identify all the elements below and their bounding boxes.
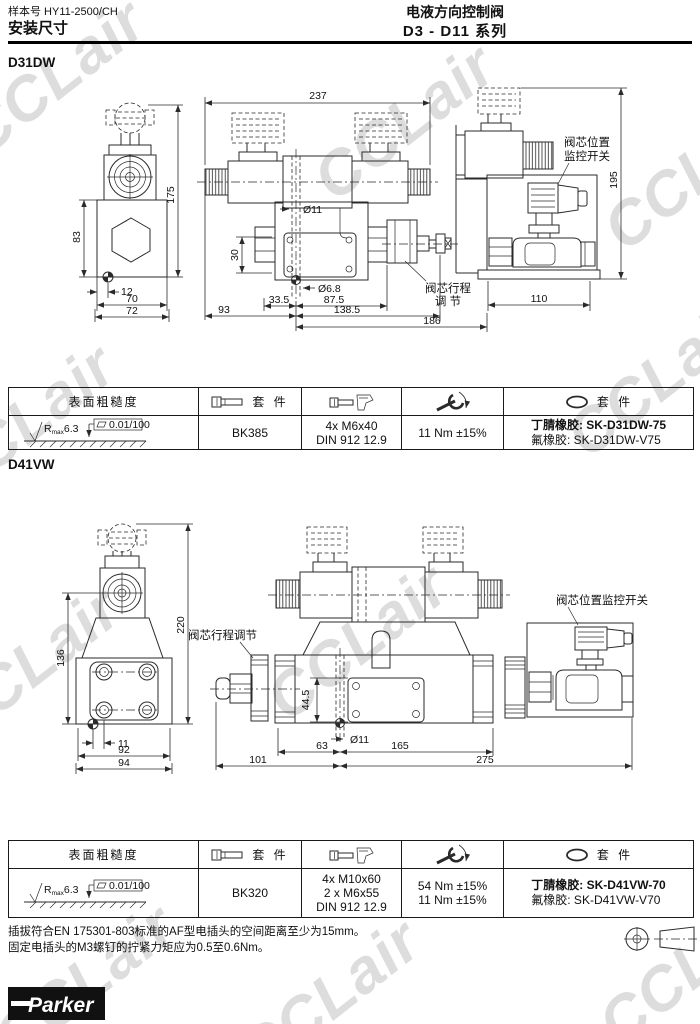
- bolt-spec-value: 4x M10x602 x M6x55DIN 912 12.9: [301, 868, 401, 917]
- footnote-line1: 插拔符合EN 175301-803标准的AF型电插头的空间距离至少为15mm。: [8, 924, 365, 940]
- wrench-icon: [431, 391, 475, 413]
- seal-kit-header: 套 件: [503, 841, 693, 868]
- roughness-symbol: Rmax6.3 0.01/100: [16, 416, 192, 449]
- seal-fkm: 氟橡胶: SK-D41VW-V70: [531, 893, 660, 908]
- seal-nbr-label: 丁腈橡胶:: [531, 418, 583, 432]
- d31dw-front-view: 237: [197, 90, 487, 332]
- bolt-line: DIN 912 12.9: [316, 433, 387, 447]
- table-d31dw: 表面粗糙度 套 件 套 件 Rmax6.3: [8, 387, 694, 450]
- dim-63: 63: [316, 740, 328, 752]
- torque-header: [401, 388, 503, 415]
- bolt-kit-value: BK385: [198, 415, 301, 449]
- page-title: 安装尺寸: [8, 17, 68, 38]
- dim-dia-11: Ø11: [303, 204, 322, 216]
- bolt-kit-header: 套 件: [198, 388, 301, 415]
- dim-94: 94: [118, 757, 130, 769]
- seal-nbr-value: SK-D31DW-75: [586, 418, 666, 432]
- seal-nbr: 丁腈橡胶: SK-D31DW-75: [531, 418, 666, 433]
- dim-33-5: 33.5: [269, 294, 290, 306]
- kit-label: 套 件: [252, 393, 288, 410]
- d41vw-front-view: 阀芯行程调节 44.5 Ø11 63 165 10: [188, 527, 632, 770]
- torque-line: 54 Nm ±15%: [418, 879, 487, 893]
- dim-138-5: 138.5: [334, 304, 360, 316]
- projection-symbol: [618, 924, 698, 956]
- dim-186: 186: [423, 315, 441, 327]
- dim-93: 93: [218, 304, 230, 316]
- screw-caliper-icon: [328, 845, 376, 865]
- bolt-line: 2 x M6x55: [324, 886, 379, 900]
- bolt-kit-header: 套 件: [198, 841, 301, 868]
- table-d41vw: 表面粗糙度 套 件 套 件 Rmax6.3: [8, 840, 694, 918]
- dim-width-72: 72: [126, 305, 138, 317]
- section-heading-d31dw: D31DW: [8, 55, 55, 70]
- kit-label: 套 件: [597, 846, 633, 863]
- seal-kit-values: 丁腈橡胶: SK-D41VW-70 氟橡胶: SK-D41VW-V70: [503, 868, 693, 917]
- roughness-text: Rmax6.3: [44, 423, 79, 436]
- bolt-line: 4x M10x60: [322, 872, 381, 886]
- dim-width-70: 70: [126, 293, 138, 305]
- footnote-line2: 固定电插头的M3螺钉的拧紧力矩应为0.5至0.6Nm。: [8, 940, 365, 956]
- series-title: D3 - D11 系列: [330, 20, 580, 41]
- brand-name: Parker: [28, 994, 95, 1017]
- dim-overall-width: 237: [309, 90, 327, 102]
- oring-icon: [564, 848, 590, 862]
- surface-roughness-symbol: Rmax6.3 0.01/100: [9, 415, 198, 449]
- dim-92: 92: [118, 744, 130, 756]
- dim-165: 165: [391, 740, 409, 752]
- flatness-value: 0.01/100: [109, 419, 150, 431]
- seal-nbr-value: SK-D41VW-70: [587, 878, 666, 892]
- torque-header: [401, 841, 503, 868]
- dim-110: 110: [531, 293, 548, 305]
- seal-kit-header: 套 件: [503, 388, 693, 415]
- header-rule: [8, 41, 692, 44]
- seal-fkm: 氟橡胶: SK-D31DW-V75: [531, 433, 661, 448]
- oring-icon: [564, 395, 590, 409]
- torque-value: 11 Nm ±15%: [401, 415, 503, 449]
- wrench-icon: [431, 844, 475, 866]
- d41vw-drawing: 136 220 11 92 94: [0, 500, 700, 800]
- label-monitor: 阀芯位置监控开关: [556, 593, 648, 607]
- dim-dia-11: Ø11: [350, 734, 369, 746]
- label-stroke-adjust: 阀芯行程调节: [188, 628, 257, 642]
- dim-44-5: 44.5: [300, 690, 312, 711]
- footnotes: 插拔符合EN 175301-803标准的AF型电插头的空间距离至少为15mm。 …: [8, 924, 365, 956]
- roughness-symbol: Rmax6.3 0.01/100: [16, 877, 192, 910]
- screw-icon: [211, 847, 245, 863]
- bolt-line: DIN 912 12.9: [316, 900, 387, 914]
- label-stroke-adjust-2: 调 节: [435, 295, 461, 308]
- dim-195: 195: [608, 171, 620, 189]
- surface-roughness-header: 表面粗糙度: [9, 841, 198, 868]
- datasheet-page: CCLair CCLair CCLair CCLair CCLair CCLai…: [0, 0, 700, 1024]
- surface-roughness-header: 表面粗糙度: [9, 388, 198, 415]
- torque-value: 54 Nm ±15%11 Nm ±15%: [401, 868, 503, 917]
- bolt-line: 4x M6x40: [325, 419, 377, 433]
- section-heading-d41vw: D41VW: [8, 457, 55, 472]
- dim-body-height: 83: [71, 231, 83, 243]
- dim-height-30: 30: [229, 249, 241, 261]
- brand-logo: Parker: [8, 987, 105, 1020]
- label-monitor-2: 监控开关: [564, 149, 610, 163]
- flatness-value: 0.01/100: [109, 880, 150, 892]
- seal-nbr-label: 丁腈橡胶:: [531, 878, 583, 892]
- kit-label: 套 件: [252, 846, 288, 863]
- bolt-kit-value: BK320: [198, 868, 301, 917]
- label-stroke-adjust-1: 阀芯行程: [425, 281, 471, 295]
- seal-kit-values: 丁腈橡胶: SK-D31DW-75 氟橡胶: SK-D31DW-V75: [503, 415, 693, 449]
- dim-136: 136: [55, 649, 67, 667]
- d31dw-switch-view: 阀芯位置 监控开关 195 110: [456, 88, 627, 311]
- surface-roughness-symbol: Rmax6.3 0.01/100: [9, 868, 198, 917]
- kit-label: 套 件: [597, 393, 633, 410]
- parker-logo: Parker: [8, 987, 105, 1020]
- torque-line: 11 Nm ±15%: [418, 893, 486, 907]
- d41vw-end-view: 136 220 11 92 94: [55, 524, 193, 774]
- dim-275: 275: [476, 754, 494, 766]
- dim-overall-height: 175: [165, 186, 177, 204]
- bolt-spec-value: 4x M6x40DIN 912 12.9: [301, 415, 401, 449]
- screw-caliper-icon: [328, 392, 376, 412]
- bolt-spec-header: [301, 388, 401, 415]
- d31dw-drawing: 175 83 12 70 72: [0, 85, 700, 335]
- bolt-spec-header: [301, 841, 401, 868]
- screw-icon: [211, 394, 245, 410]
- d41vw-switch-view: 阀芯位置监控开关: [505, 593, 648, 718]
- roughness-text: Rmax6.3: [44, 884, 79, 897]
- label-monitor-1: 阀芯位置: [564, 135, 610, 149]
- watermark: CCLair: [225, 905, 434, 1024]
- d31dw-end-view: 175 83 12 70 72: [71, 103, 183, 322]
- seal-nbr: 丁腈橡胶: SK-D41VW-70: [531, 878, 665, 893]
- product-title: 电液方向控制阀: [330, 2, 580, 22]
- dim-101: 101: [249, 754, 267, 766]
- dim-220: 220: [175, 616, 187, 634]
